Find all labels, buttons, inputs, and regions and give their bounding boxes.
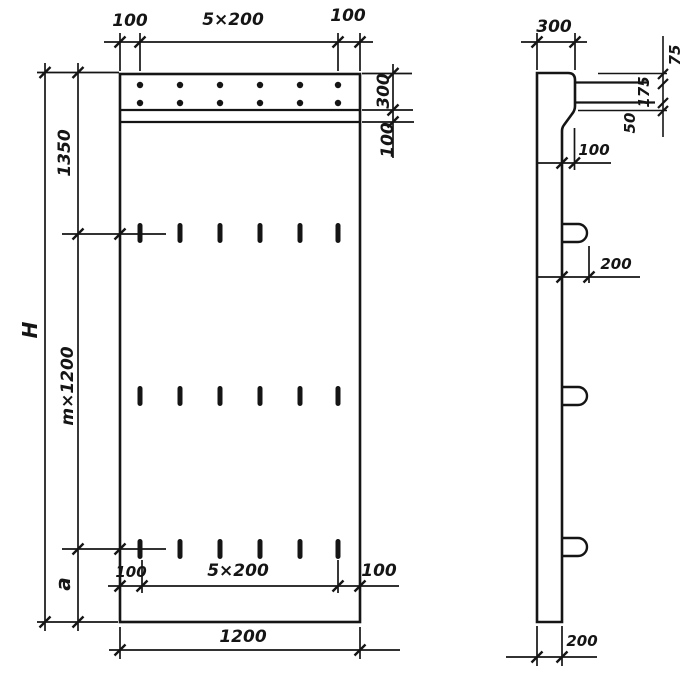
dim-label-bottom-right-margin: 100	[361, 561, 397, 581]
side-top-dimension	[521, 33, 587, 70]
dim-label-top-left-margin: 100	[112, 11, 148, 31]
dim-label-loop-protrusion: 200	[600, 255, 631, 273]
panel-outline	[120, 74, 360, 622]
dim-label-bottom-offset: a	[51, 577, 75, 591]
dim-label-edge-middle: 175	[635, 76, 653, 107]
dim-label-total-height: H	[18, 321, 42, 338]
loop	[562, 224, 587, 242]
drawing-sheet: 100 5×200 100 300 100	[0, 0, 700, 700]
panel-technical-drawing: 100 5×200 100 300 100	[0, 0, 700, 700]
dim-label-top-offset: 1350	[55, 129, 75, 176]
dim-label-edge-top: 75	[666, 45, 684, 66]
side-view: 300 75 175 50 100	[506, 17, 684, 666]
dim-label-top-spacing: 5×200	[202, 10, 264, 30]
front-view: 100 5×200 100 300 100	[18, 6, 414, 659]
tick-marks	[40, 67, 126, 628]
wall-profile-outline	[537, 73, 575, 622]
dim-label-bottom-left-margin: 100	[115, 563, 146, 581]
front-top-dimension	[104, 33, 373, 71]
dim-label-module: m×1200	[58, 346, 78, 425]
loop	[562, 387, 587, 405]
dim-label-bottom-spacing: 5×200	[207, 561, 269, 581]
dim-label-step-offset: 100	[578, 141, 609, 159]
dim-label-wall-thickness: 200	[566, 632, 597, 650]
anchor-dots	[137, 82, 341, 106]
dim-label-band-height: 100	[378, 122, 398, 158]
dim-label-overall-width: 1200	[219, 627, 266, 647]
dim-label-edge-bottom: 50	[621, 113, 639, 134]
slot-rows	[138, 223, 341, 559]
dim-label-side-top-width: 300	[536, 17, 572, 37]
dim-label-top-right-margin: 100	[330, 6, 366, 26]
dim-label-strip-height: 300	[374, 73, 394, 109]
loop	[562, 538, 587, 556]
